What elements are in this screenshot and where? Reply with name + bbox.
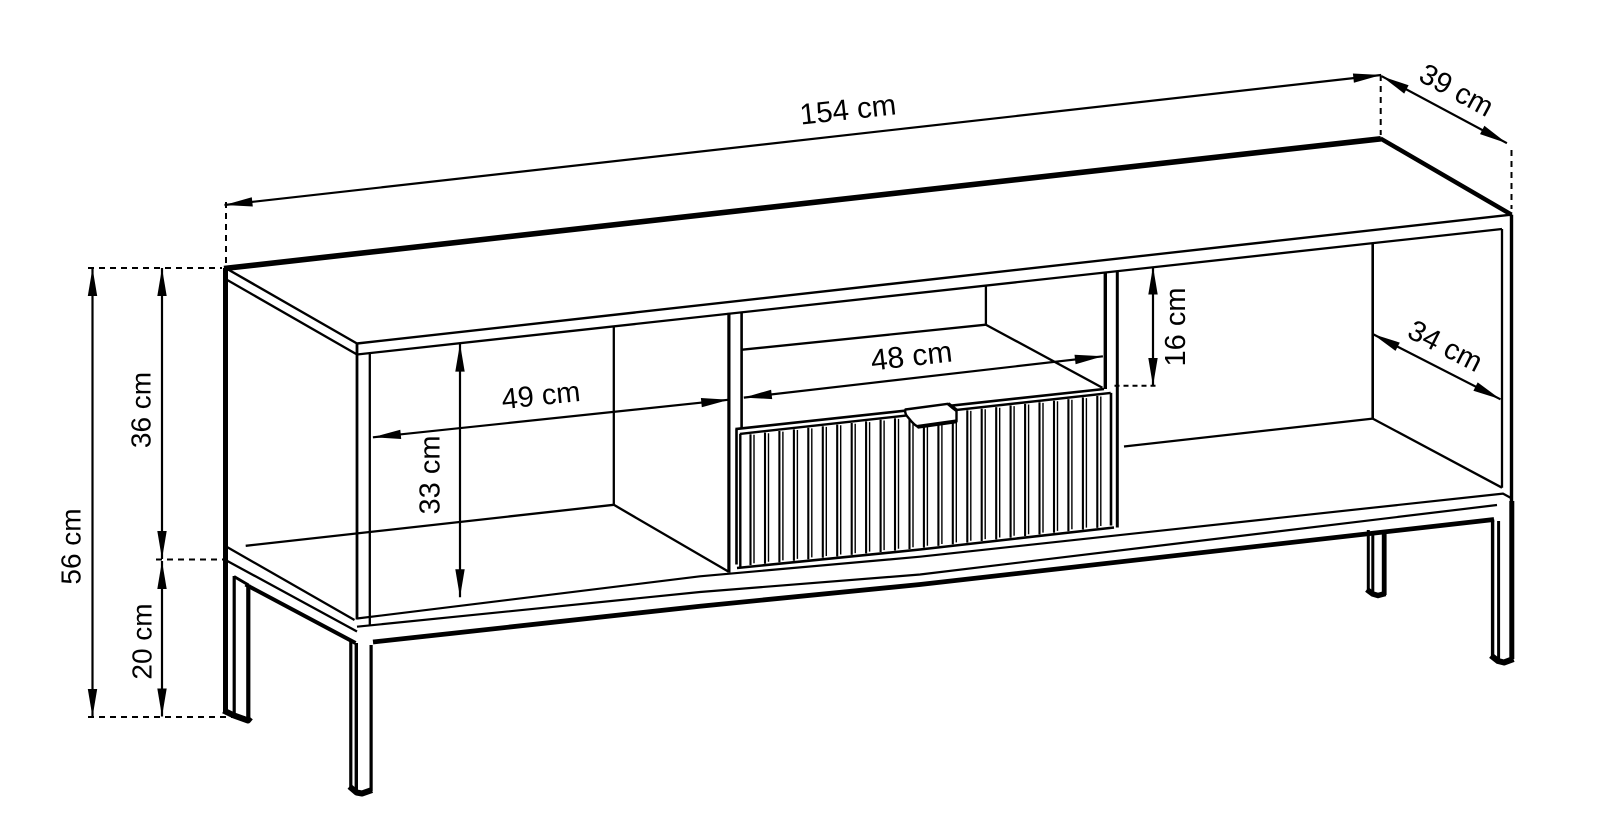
svg-text:20 cm: 20 cm [127, 603, 158, 679]
svg-text:33 cm: 33 cm [415, 436, 447, 515]
svg-text:36 cm: 36 cm [126, 372, 157, 448]
svg-text:56 cm: 56 cm [56, 508, 87, 584]
svg-text:16 cm: 16 cm [1160, 288, 1192, 367]
